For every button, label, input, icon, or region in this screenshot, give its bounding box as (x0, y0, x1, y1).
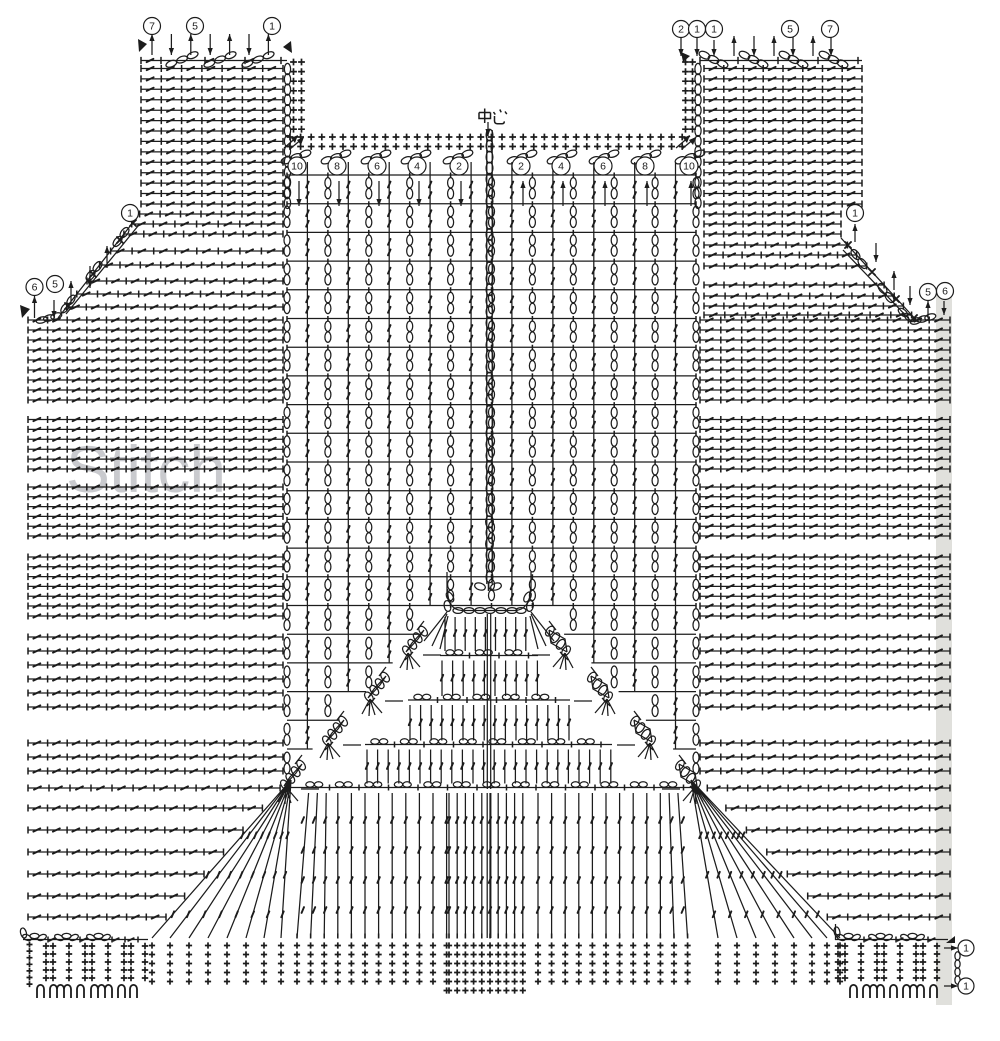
svg-text:2: 2 (518, 161, 524, 173)
svg-text:1: 1 (963, 981, 969, 993)
svg-text:10: 10 (683, 161, 695, 173)
svg-text:1: 1 (127, 208, 133, 220)
svg-text:6: 6 (942, 286, 948, 298)
svg-text:7: 7 (149, 21, 155, 33)
svg-text:6: 6 (600, 161, 606, 173)
svg-text:10: 10 (291, 161, 303, 173)
svg-text:8: 8 (334, 161, 340, 173)
svg-text:8: 8 (642, 161, 648, 173)
svg-text:1: 1 (711, 24, 717, 36)
svg-text:4: 4 (414, 161, 420, 173)
svg-text:6: 6 (374, 161, 380, 173)
svg-text:7: 7 (827, 24, 833, 36)
svg-text:2: 2 (456, 161, 462, 173)
svg-text:4: 4 (558, 161, 564, 173)
svg-text:1: 1 (852, 208, 858, 220)
svg-text:1: 1 (963, 943, 969, 955)
svg-text:6: 6 (32, 282, 38, 294)
svg-text:5: 5 (787, 24, 793, 36)
svg-text:5: 5 (192, 21, 198, 33)
svg-text:1: 1 (694, 24, 700, 36)
svg-text:2: 2 (678, 24, 684, 36)
svg-text:1: 1 (269, 21, 275, 33)
svg-text:5: 5 (52, 279, 58, 291)
svg-text:5: 5 (925, 287, 931, 299)
